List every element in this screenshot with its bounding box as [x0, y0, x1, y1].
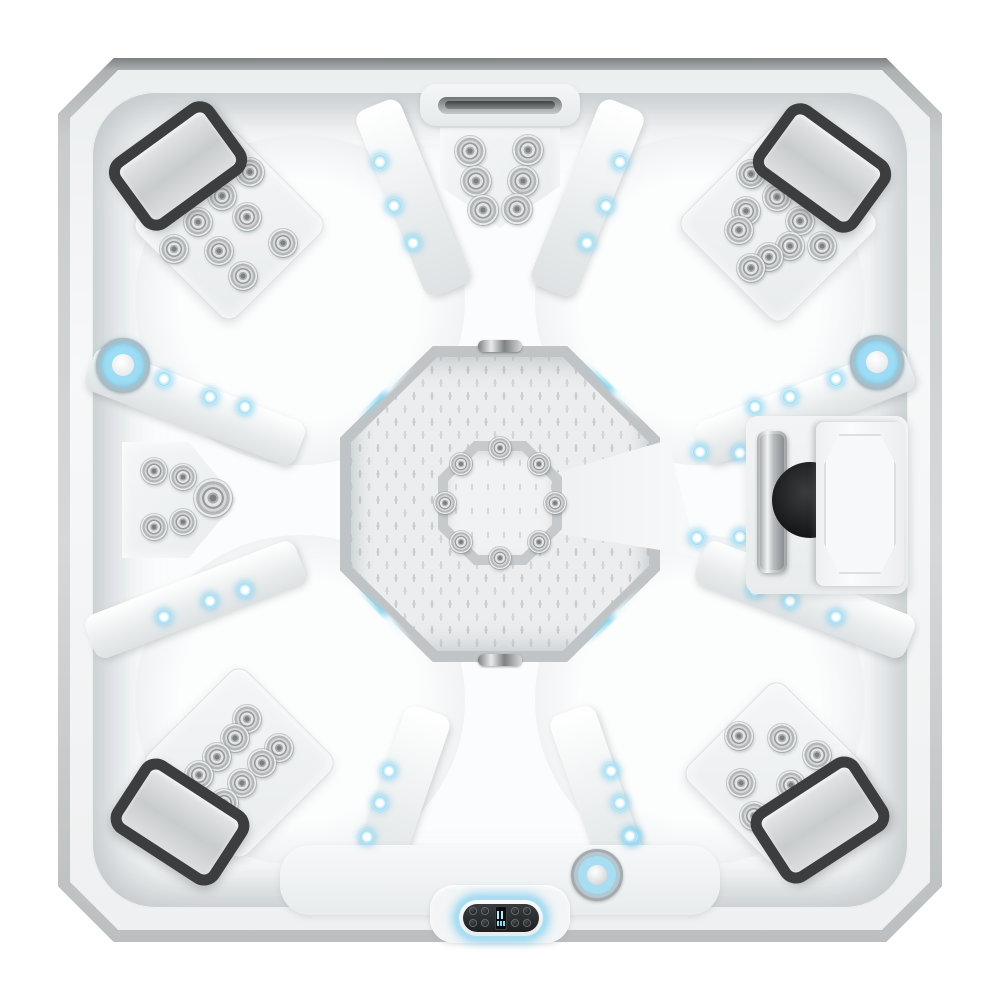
jet-foot-blaster-ring — [528, 531, 550, 553]
waterfall-slit — [445, 101, 555, 109]
jet-bottom-right-seat — [725, 722, 753, 750]
control-button — [469, 907, 477, 915]
led-point-light — [693, 445, 708, 460]
jet-left-lounge — [170, 464, 196, 490]
jet-top-left-seat — [160, 235, 188, 263]
jet-foot-blaster-ring — [489, 547, 511, 569]
accent-core — [866, 351, 888, 373]
jet-top-center-seat — [513, 135, 543, 165]
chrome-fitting-bottom — [478, 654, 522, 666]
jet-foot-blaster-ring — [489, 437, 511, 459]
led-point-light — [623, 829, 638, 844]
led-point-light — [748, 400, 763, 415]
control-button — [511, 907, 519, 915]
led-point-light — [783, 594, 798, 609]
display-bars-row — [497, 921, 505, 926]
control-buttons-right — [511, 907, 533, 929]
control-button — [481, 919, 489, 927]
display-digits-row — [497, 911, 505, 919]
control-button — [511, 919, 519, 927]
jet-top-center-seat — [508, 166, 538, 196]
jet-top-left-seat — [205, 237, 233, 265]
jet-top-center-seat — [455, 136, 485, 166]
led-point-light — [238, 583, 253, 598]
jet-top-right-seat — [737, 254, 765, 282]
control-button — [469, 919, 477, 927]
jet-top-left-seat — [229, 262, 257, 290]
chrome-fitting-top — [478, 340, 522, 352]
accent-ring-light — [850, 335, 904, 389]
led-point-light — [580, 236, 595, 251]
jet-bottom-right-seat — [727, 769, 755, 797]
jet-left-lounge — [170, 509, 196, 535]
led-point-light — [360, 830, 375, 845]
jet-top-center-seat — [502, 194, 532, 224]
accent-ring-light — [96, 338, 150, 392]
topside-control-panel — [456, 897, 546, 939]
led-point-light — [373, 796, 388, 811]
jet-foot-blaster-ring — [544, 492, 566, 514]
hot-tub-top-view-photo — [0, 0, 1000, 1000]
accent-core — [112, 354, 134, 376]
jet-foot-blaster-ring — [450, 531, 472, 553]
led-point-light — [373, 155, 388, 170]
led-point-light — [382, 764, 397, 779]
jet-left-lounge — [194, 479, 232, 517]
jet-top-right-seat — [808, 232, 836, 260]
led-point-light — [203, 390, 218, 405]
jet-foot-blaster-ring — [434, 492, 456, 514]
led-point-light — [387, 199, 402, 214]
jet-left-lounge — [141, 458, 167, 484]
control-button — [523, 907, 531, 915]
jet-top-right-seat — [725, 216, 753, 244]
suction-dome — [587, 865, 607, 885]
control-button — [481, 907, 489, 915]
control-button — [523, 919, 531, 927]
control-buttons-left — [469, 907, 491, 929]
led-point-light — [829, 372, 844, 387]
led-point-light — [157, 610, 172, 625]
led-point-light — [238, 400, 253, 415]
jet-top-center-seat — [461, 166, 491, 196]
jet-bottom-right-seat — [768, 724, 796, 752]
jet-top-center-seat — [468, 195, 498, 225]
led-point-light — [406, 236, 421, 251]
jet-foot-blaster-ring — [528, 453, 550, 475]
led-point-light — [613, 155, 628, 170]
jet-top-left-seat — [269, 229, 297, 257]
jet-foot-blaster-ring — [450, 453, 472, 475]
compartment-door-inlay — [824, 434, 896, 574]
suction-fitting — [571, 849, 623, 901]
led-point-light — [829, 610, 844, 625]
jet-top-left-seat — [184, 208, 212, 236]
led-point-light — [613, 796, 628, 811]
jet-top-left-seat — [233, 203, 261, 231]
control-display — [495, 906, 507, 930]
led-point-light — [203, 594, 218, 609]
led-point-light — [157, 372, 172, 387]
led-point-light — [690, 531, 705, 546]
led-point-light — [783, 390, 798, 405]
control-panel-face — [463, 904, 539, 932]
control-panel-bezel — [459, 900, 543, 936]
led-point-light — [599, 199, 614, 214]
jet-left-lounge — [141, 514, 167, 540]
led-point-light — [604, 764, 619, 779]
